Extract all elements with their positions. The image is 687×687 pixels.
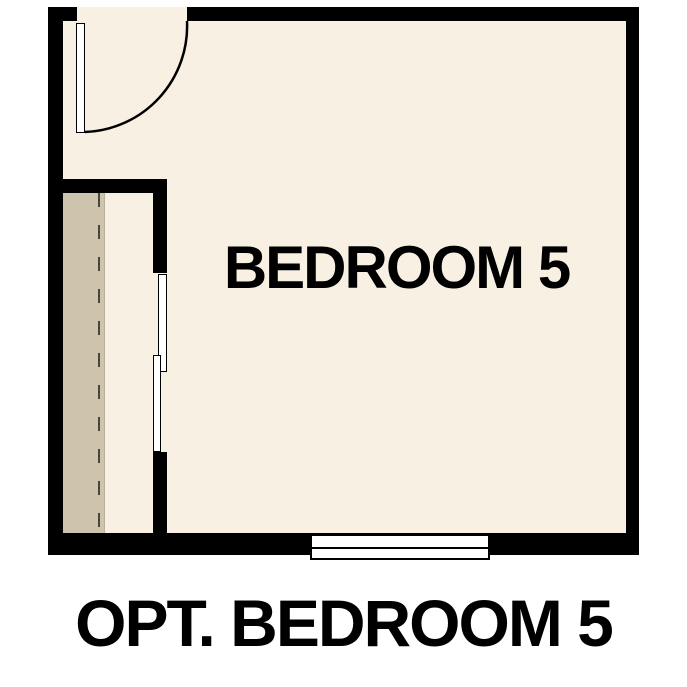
closet-rod-dashed-line bbox=[98, 193, 100, 533]
floor-plan: BEDROOM 5 OPT. BEDROOM 5 bbox=[0, 0, 687, 687]
plan-caption: OPT. BEDROOM 5 bbox=[48, 590, 639, 656]
closet-wall-upper-stub bbox=[153, 179, 167, 273]
wall-right bbox=[626, 7, 639, 555]
bypass-door-panel-left bbox=[153, 355, 161, 452]
room-label: BEDROOM 5 bbox=[167, 238, 626, 298]
closet-wall-lower-stub bbox=[153, 452, 167, 533]
window-inner-sash bbox=[310, 547, 490, 560]
closet-wall-horizontal bbox=[63, 179, 167, 193]
wall-top-right-segment bbox=[187, 7, 639, 21]
door-swing-arc-icon bbox=[60, 8, 200, 143]
